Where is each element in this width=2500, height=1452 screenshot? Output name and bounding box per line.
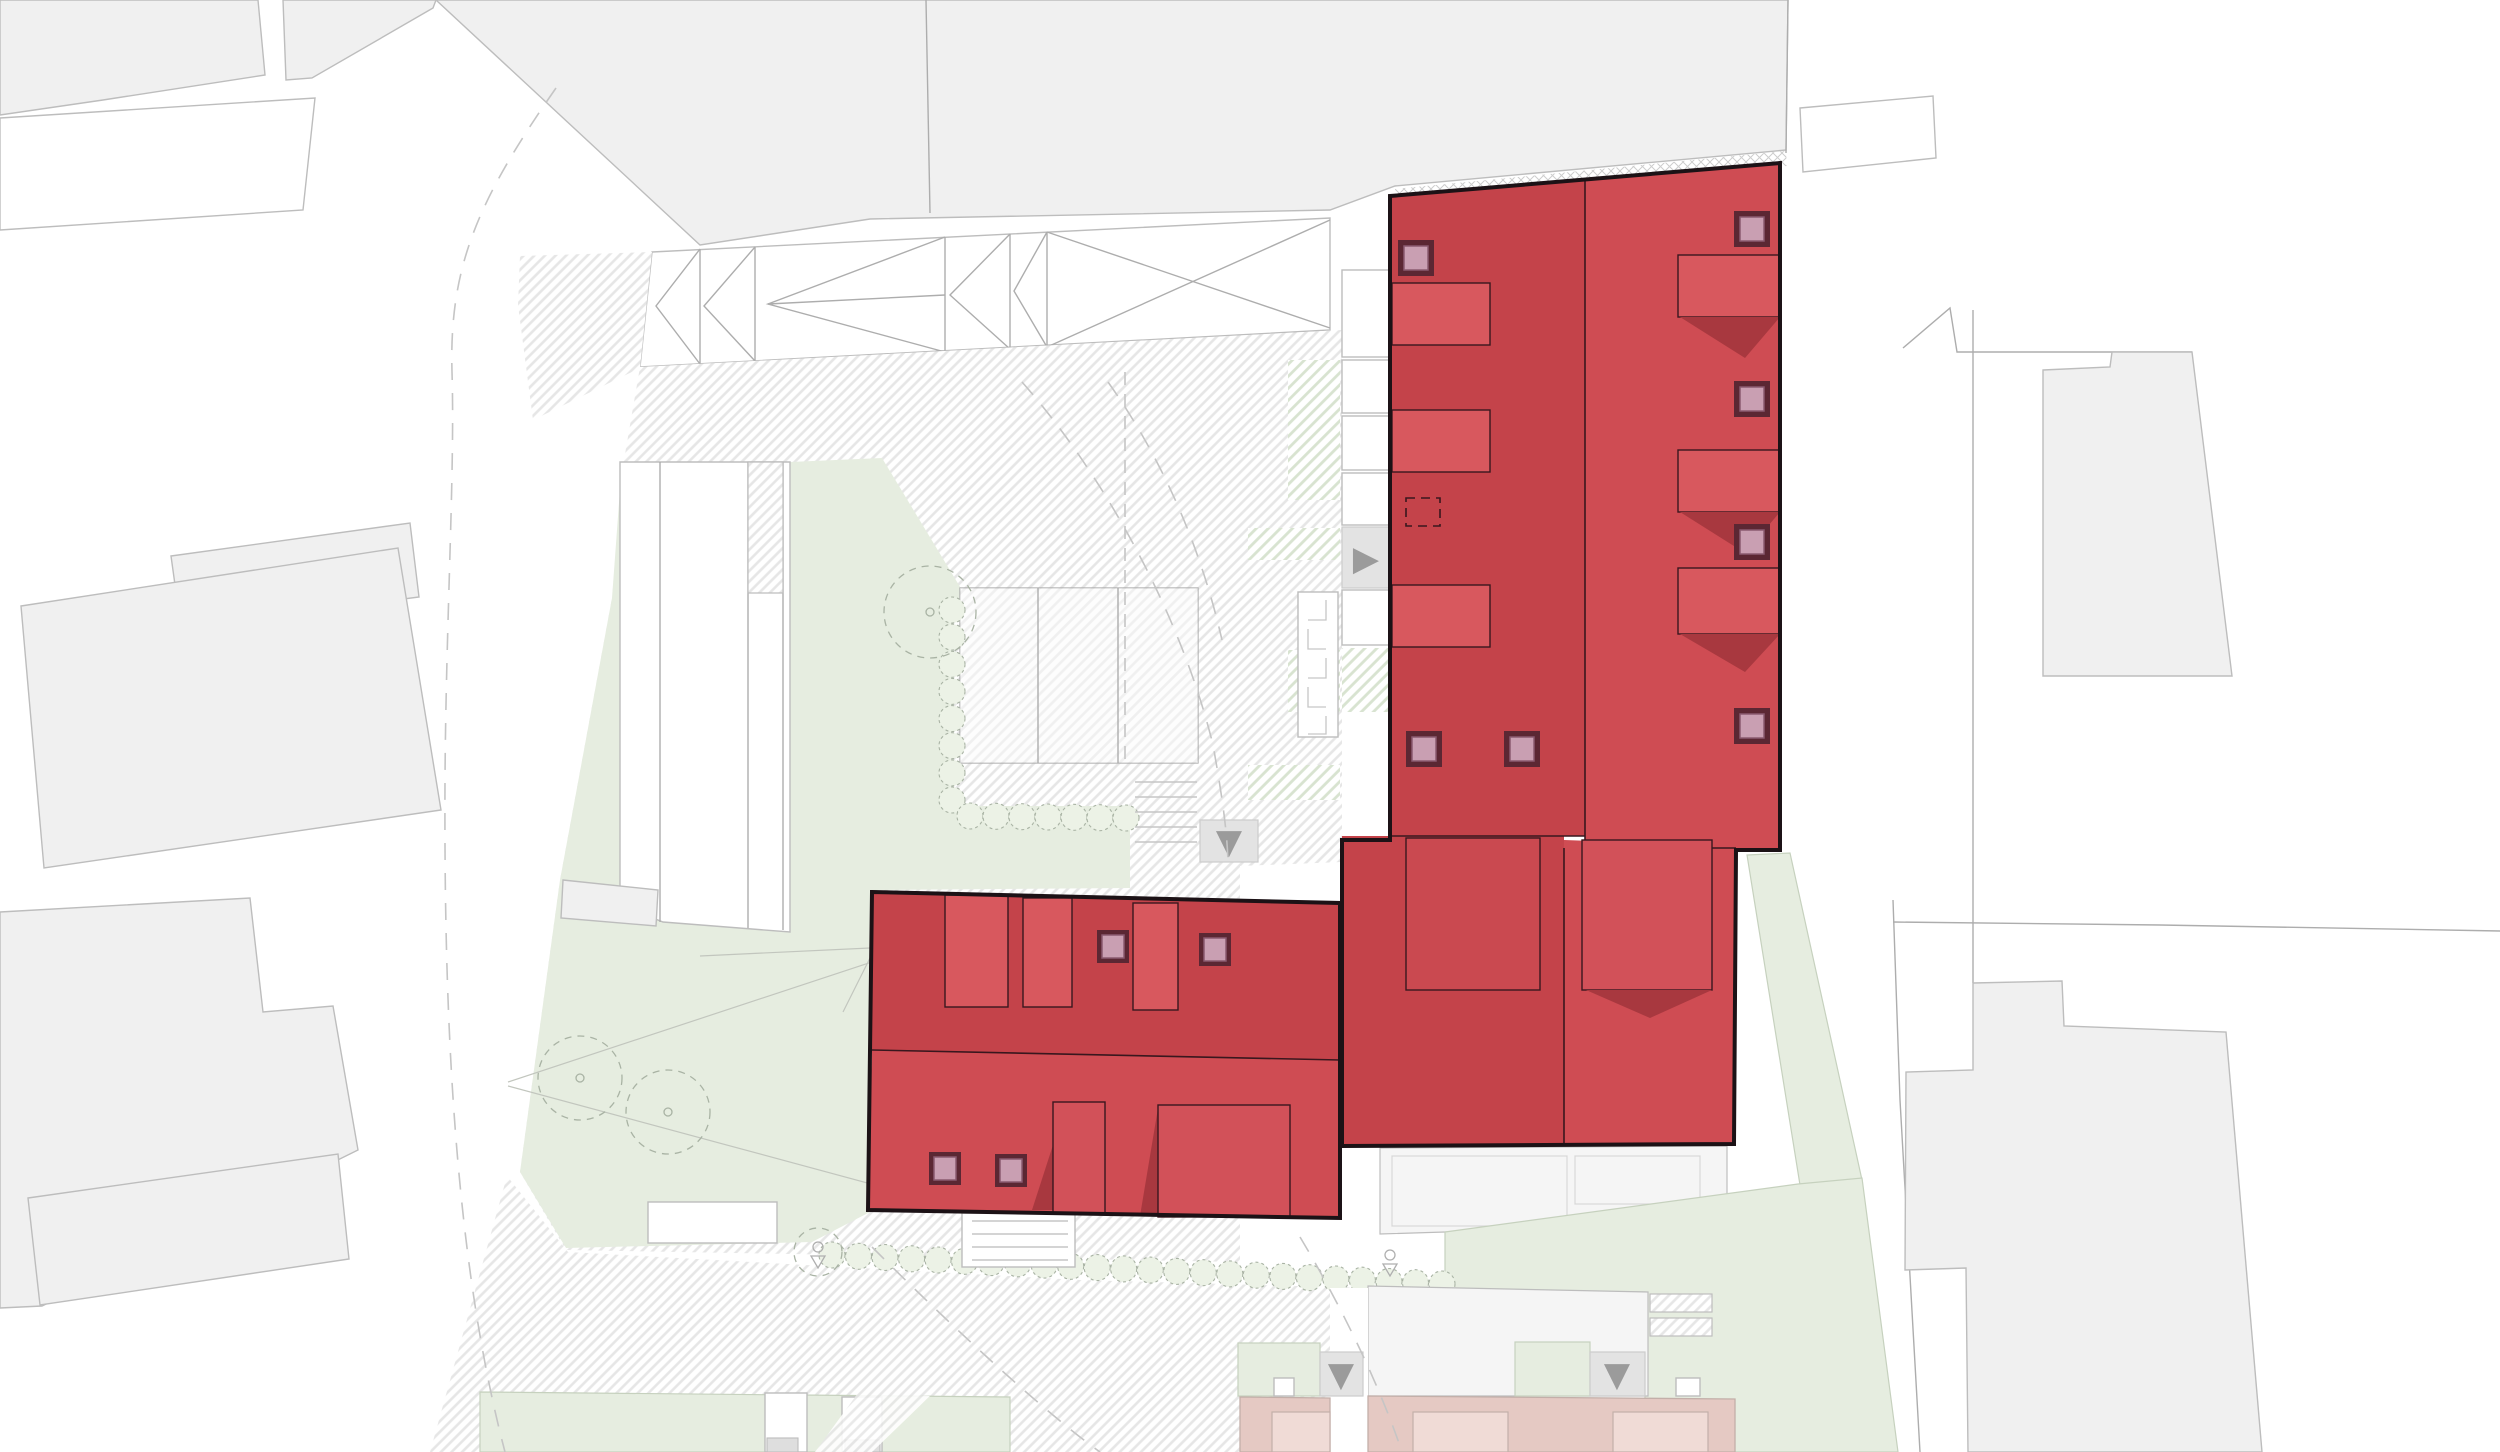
grass-pavers [1248, 528, 1340, 560]
shrub [846, 1243, 872, 1269]
south-salmon-buildings [1240, 1396, 1735, 1452]
entry-box [1274, 1378, 1294, 1396]
skylight [1504, 731, 1540, 767]
shrub [1061, 804, 1087, 830]
site-plan-canvas: ▼ ▶ [0, 0, 2500, 1452]
garage-hatch [748, 462, 783, 593]
shrub [957, 803, 983, 829]
parking-bays [960, 588, 1198, 763]
arrow-down-icon: ▼ [1216, 822, 1243, 862]
highlighted-building-north[interactable] [1342, 163, 1780, 1146]
shrub [925, 1247, 951, 1273]
skylight [1734, 524, 1770, 560]
roof-dormer [1392, 410, 1490, 472]
shrub [1087, 805, 1113, 831]
skylight [1097, 930, 1129, 963]
grass-pavers [1248, 765, 1340, 800]
roof-dormer [1392, 585, 1490, 647]
shrub [1217, 1261, 1243, 1287]
bike-storage [1298, 592, 1338, 737]
shrub [939, 597, 965, 623]
shrub [939, 624, 965, 650]
skylight [1398, 240, 1434, 276]
shrub [939, 706, 965, 732]
paver-strip [1650, 1294, 1712, 1312]
shrub [939, 651, 965, 677]
site-plan-svg: ▼ ▶ [0, 0, 2500, 1452]
grass-pavers [1342, 648, 1390, 712]
paver-strip [1650, 1318, 1712, 1336]
shrub [1270, 1263, 1296, 1289]
shrub [1164, 1258, 1190, 1284]
shrub [872, 1245, 898, 1271]
roof-dormer [1133, 903, 1178, 1010]
roof-dormer [1678, 568, 1780, 634]
shrub [939, 760, 965, 786]
northeast-parcel-outline [1800, 96, 1936, 172]
ramp-entrance: ▶ [1342, 527, 1390, 588]
west-parcel-outline [0, 98, 315, 230]
ramp-down: ▼ [1320, 1352, 1363, 1396]
ramp-down: ▼ [1200, 820, 1258, 862]
roof-dormer [1053, 1102, 1105, 1214]
roof-dormer [945, 895, 1008, 1007]
skylight [1406, 731, 1442, 767]
arrow-down-icon: ▼ [1328, 1355, 1355, 1395]
skylight [995, 1154, 1027, 1187]
green-strip [1515, 1342, 1590, 1396]
skylight [1734, 708, 1770, 744]
roof-terrace [1582, 840, 1712, 990]
roof-dormer [1392, 283, 1490, 345]
arrow-down-icon: ▼ [1604, 1355, 1631, 1395]
ramp-down: ▼ [1590, 1352, 1645, 1396]
entry-box [1676, 1378, 1700, 1396]
shrub [1190, 1260, 1216, 1286]
roof-dormer [1678, 450, 1780, 512]
highlighted-building-south[interactable] [868, 892, 1340, 1218]
shrub [939, 678, 965, 704]
shrub [899, 1246, 925, 1272]
shrub [939, 733, 965, 759]
shrub [1084, 1255, 1110, 1281]
roof-dormer [1158, 1105, 1290, 1217]
roof-terrace [1406, 838, 1540, 990]
shrub [1137, 1257, 1163, 1283]
bottom-green [480, 1392, 1010, 1452]
shrub [1111, 1256, 1137, 1282]
play-area [648, 1202, 777, 1243]
shrub [1009, 804, 1035, 830]
skylight [1199, 933, 1231, 966]
skylight [929, 1152, 961, 1185]
shrub [983, 803, 1009, 829]
skylight [1734, 211, 1770, 247]
roof-dormer [1023, 898, 1072, 1007]
shrub [1035, 804, 1061, 830]
arrow-right-icon: ▶ [1353, 539, 1380, 579]
shrub [1243, 1262, 1269, 1288]
grass-pavers [1288, 360, 1340, 500]
roof-dormer [1678, 255, 1780, 317]
bottom-stub [767, 1438, 798, 1452]
skylight [1734, 381, 1770, 417]
